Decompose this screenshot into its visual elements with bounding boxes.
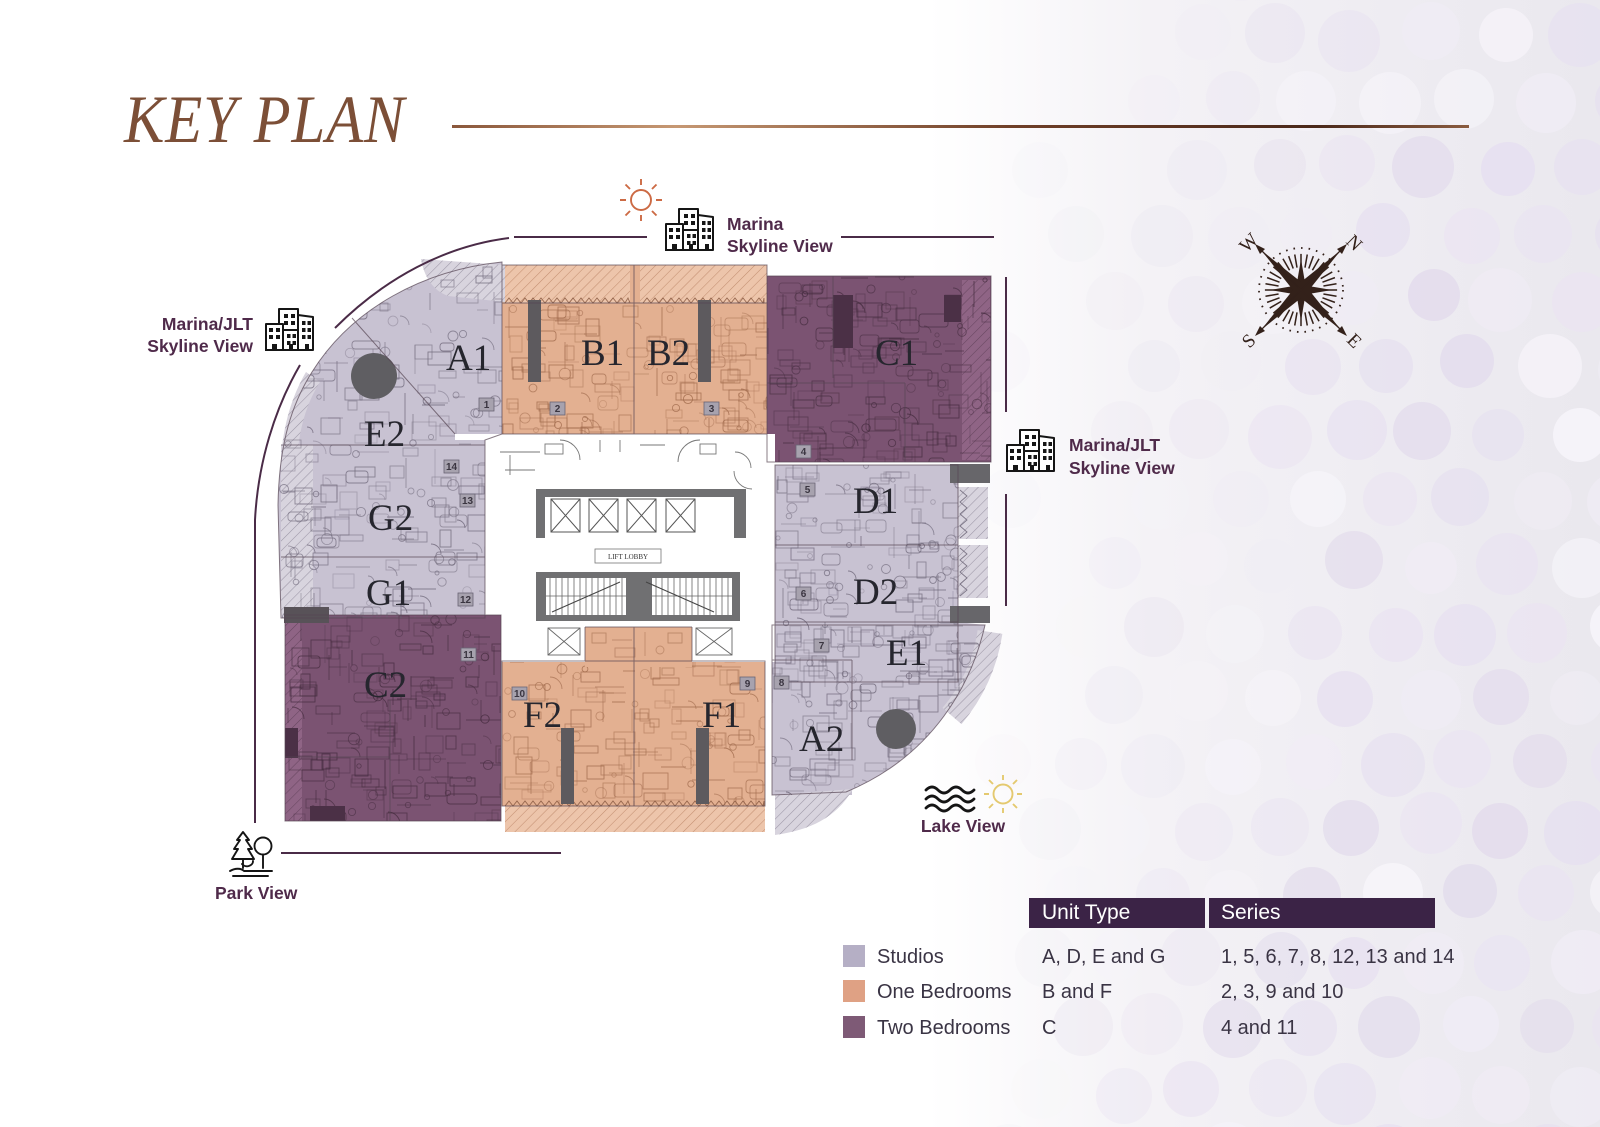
svg-text:B and F: B and F [1042,981,1112,1003]
svg-text:Marina: Marina [727,214,784,234]
svg-text:C2: C2 [364,665,407,706]
svg-text:5: 5 [805,485,811,496]
svg-text:Series: Series [1221,901,1281,924]
svg-text:A2: A2 [799,719,844,760]
svg-text:LIFT LOBBY: LIFT LOBBY [608,553,648,561]
svg-text:A1: A1 [446,338,491,379]
svg-text:D2: D2 [853,572,898,613]
svg-text:14: 14 [446,462,458,473]
svg-text:Lake View: Lake View [921,816,1006,836]
svg-text:Two Bedrooms: Two Bedrooms [877,1017,1010,1039]
svg-text:G1: G1 [366,573,411,614]
svg-text:Skyline View: Skyline View [727,236,833,256]
svg-text:1, 5, 6, 7, 8, 12, 13 and 14: 1, 5, 6, 7, 8, 12, 13 and 14 [1221,946,1455,968]
svg-text:3: 3 [709,404,715,415]
svg-text:B1: B1 [581,333,624,374]
svg-text:A, D, E and G: A, D, E and G [1042,946,1165,968]
svg-text:Studios: Studios [877,946,944,968]
svg-text:F2: F2 [523,695,562,736]
svg-text:7: 7 [819,641,825,652]
svg-text:Marina/JLT: Marina/JLT [1069,435,1160,455]
svg-text:Unit Type: Unit Type [1042,901,1130,924]
svg-text:2, 3, 9 and 10: 2, 3, 9 and 10 [1221,981,1343,1003]
svg-text:9: 9 [745,679,751,690]
svg-text:G2: G2 [368,498,413,539]
svg-text:F1: F1 [702,695,741,736]
svg-text:One Bedrooms: One Bedrooms [877,981,1012,1003]
svg-text:12: 12 [460,595,472,606]
svg-text:13: 13 [462,496,474,507]
svg-text:6: 6 [801,589,807,600]
svg-text:1: 1 [484,400,490,411]
svg-text:Skyline View: Skyline View [147,336,253,356]
svg-text:E1: E1 [886,633,927,674]
svg-text:2: 2 [555,404,561,415]
svg-text:4: 4 [801,447,807,458]
svg-text:10: 10 [514,689,526,700]
svg-text:B2: B2 [647,333,690,374]
svg-text:C1: C1 [875,333,918,374]
svg-text:KEY PLAN: KEY PLAN [123,82,407,157]
svg-text:11: 11 [463,650,474,661]
svg-text:4 and 11: 4 and 11 [1221,1017,1297,1039]
svg-text:Marina/JLT: Marina/JLT [162,314,253,334]
svg-text:C: C [1042,1017,1056,1039]
svg-text:8: 8 [779,678,785,689]
svg-text:Skyline View: Skyline View [1069,458,1175,478]
svg-text:E2: E2 [364,414,405,455]
svg-text:Park View: Park View [215,883,298,903]
svg-text:D1: D1 [853,481,898,522]
